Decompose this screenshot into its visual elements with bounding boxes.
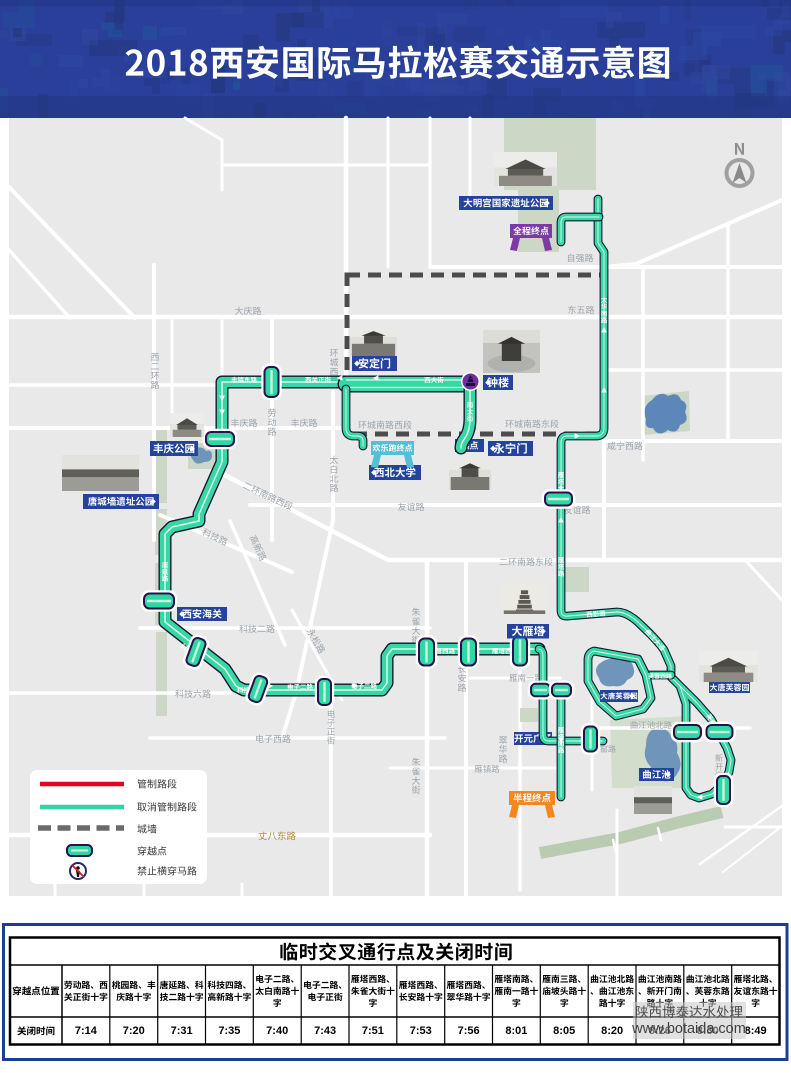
- svg-text:7:43: 7:43: [314, 1025, 336, 1037]
- svg-text:7:31: 7:31: [171, 1025, 193, 1037]
- svg-text:7:20: 7:20: [123, 1025, 145, 1037]
- svg-text:7:56: 7:56: [458, 1025, 480, 1037]
- svg-text:8:01: 8:01: [505, 1025, 527, 1037]
- svg-text:7:35: 7:35: [218, 1025, 240, 1037]
- svg-text:8:05: 8:05: [553, 1025, 575, 1037]
- svg-text:7:53: 7:53: [410, 1025, 432, 1037]
- svg-text:8:20: 8:20: [601, 1025, 623, 1037]
- svg-text:7:14: 7:14: [75, 1025, 98, 1037]
- svg-text:7:51: 7:51: [362, 1025, 384, 1037]
- svg-text:7:40: 7:40: [266, 1025, 288, 1037]
- svg-text:www.botaida.com: www.botaida.com: [631, 1021, 746, 1037]
- svg-text:8:49: 8:49: [745, 1025, 767, 1037]
